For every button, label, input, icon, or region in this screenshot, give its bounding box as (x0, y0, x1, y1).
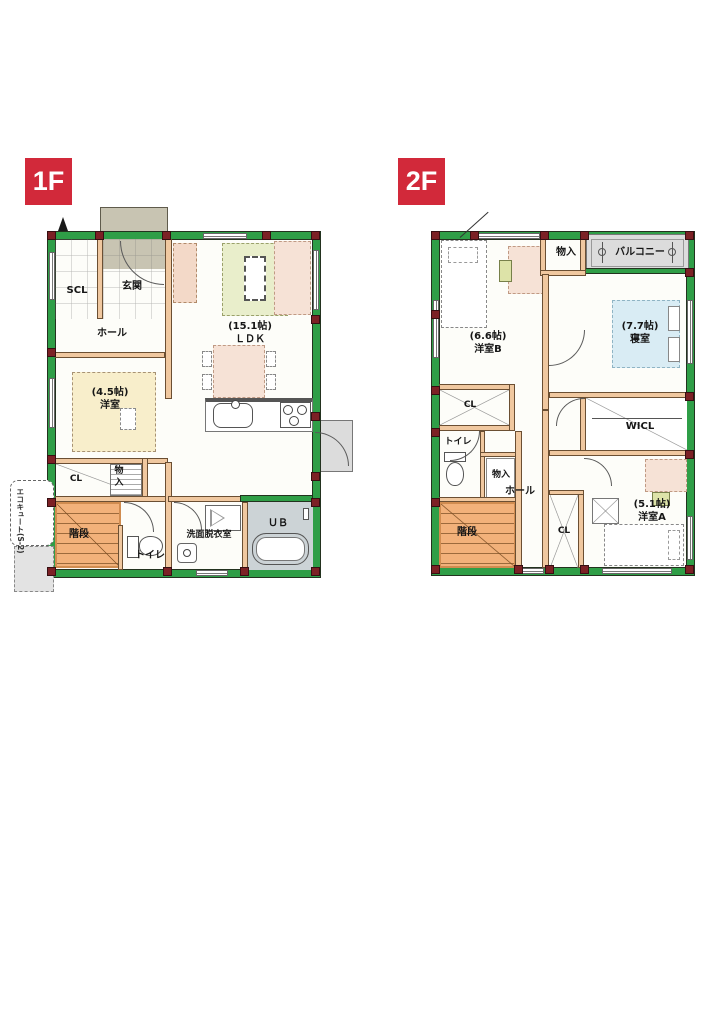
pillar (685, 231, 694, 240)
pillar (685, 565, 694, 574)
pillar (685, 392, 694, 401)
room-label-youshitsuA: (5.1帖) 洋室A (616, 498, 688, 524)
pillar (431, 498, 440, 507)
room-label-youshitsuB: (6.6帖) 洋室B (452, 330, 524, 356)
room-label-ldk: (15.1帖) ＬＤＫ (212, 320, 288, 346)
wall-closet-stairs (55, 496, 168, 502)
window (49, 378, 55, 428)
sink-drain-icon (183, 549, 191, 557)
coat-closet (173, 243, 197, 303)
pillar (514, 565, 523, 574)
pillar (311, 315, 320, 324)
pillar (470, 231, 479, 240)
pillar (47, 567, 56, 576)
pillar (311, 412, 320, 421)
wall-balcony (584, 268, 689, 274)
dining-table (213, 345, 265, 398)
room-label-hall2: ホール (494, 485, 546, 498)
room-label-genkan: 玄関 (104, 280, 160, 293)
wall-cl-top (549, 490, 584, 495)
faucet-icon (231, 400, 240, 409)
wall-monoire-left (540, 239, 546, 274)
pillar (431, 310, 440, 319)
pillar (431, 231, 440, 240)
pillar (685, 450, 694, 459)
north-arrow-icon (58, 217, 68, 231)
wall-roomB-closet (439, 384, 515, 390)
tatami-rug (72, 372, 156, 452)
pillar (431, 428, 440, 437)
room-label-wicl: WICL (614, 420, 666, 433)
stove-burner-icon (297, 405, 307, 415)
pillar (240, 567, 249, 576)
wall-hall-left (515, 431, 522, 568)
shower-fixture (303, 508, 309, 520)
pillar (311, 498, 320, 507)
room-label-monoire: 物入 (112, 466, 126, 489)
stove-burner-icon (289, 416, 299, 426)
bathtub (252, 533, 309, 565)
floor2-badge: 2F (398, 158, 445, 205)
dining-chair (266, 374, 276, 390)
wall-cl-roomA (578, 490, 584, 568)
window (433, 300, 439, 358)
wall-monoire-top (480, 452, 516, 457)
pillar (580, 231, 589, 240)
wall-roomB-bedroom (542, 274, 549, 410)
pillar (545, 565, 554, 574)
washing-machine (205, 505, 241, 531)
window (203, 233, 247, 239)
window (49, 252, 55, 300)
wicl-hanger-pipe (592, 418, 682, 419)
wall-genkan-ldk (165, 239, 172, 399)
chair-roomB (499, 260, 512, 282)
wall-ldk-bath-green (240, 495, 313, 502)
pillar (47, 348, 56, 357)
pillar (685, 268, 694, 277)
pillow (448, 247, 478, 263)
wall-bedroom-wicl (549, 392, 687, 398)
wall-closet-right (509, 384, 515, 431)
pillar (431, 565, 440, 574)
room-label-balcony: バルコニー (598, 246, 682, 259)
sofa (274, 241, 311, 315)
floorplan-sheet: 1F 2F (0, 0, 724, 1024)
pillar (311, 231, 320, 240)
pillar (163, 567, 172, 576)
pillar (580, 565, 589, 574)
room-label-kaidan: 階段 (60, 528, 98, 541)
wall-wicl-roomA (549, 450, 687, 456)
room-label-scl: SCL (60, 284, 94, 297)
room-label-toilet: トイレ (128, 549, 172, 562)
floor1-badge: 1F (25, 158, 72, 205)
room-label-cl-upper: CL (458, 400, 482, 412)
pillar (262, 231, 271, 240)
pillar (95, 231, 104, 240)
dining-chair (266, 351, 276, 367)
window (313, 250, 319, 310)
dining-chair (202, 351, 212, 367)
dresser-roomA (645, 459, 687, 492)
ecocute-label: エコキュート(S-2) (15, 486, 25, 556)
window (602, 568, 672, 574)
desk-roomB (508, 246, 544, 294)
wall-room-closet (55, 458, 168, 464)
coffee-table (244, 256, 266, 301)
room-label-kaidan2: 階段 (448, 526, 486, 539)
wall-ldk-washroom (168, 496, 242, 502)
room-label-cl: CL (64, 474, 88, 486)
pillow (668, 530, 680, 560)
pillar (47, 455, 56, 464)
room-label-monoire-mid: 物入 (485, 470, 517, 482)
pillar (47, 498, 56, 507)
room-label-youshitsu45: (4.5帖) 洋室 (76, 386, 144, 412)
toilet-bowl (446, 462, 464, 486)
wall-hall-room (55, 352, 165, 358)
room-label-monoire-top: 物入 (548, 246, 584, 259)
dining-chair (202, 374, 212, 390)
window (196, 570, 228, 576)
pillar (540, 231, 549, 240)
room-label-shinshitsu: (7.7帖) 寝室 (606, 320, 674, 346)
pillar (47, 231, 56, 240)
window (687, 300, 693, 364)
desk-roomA (592, 498, 619, 524)
room-label-toilet2: トイレ (436, 437, 480, 449)
wall-stairs-toilet (118, 525, 123, 570)
room-label-ub: ＵＢ (256, 517, 300, 530)
pillar (162, 231, 171, 240)
room-label-senmen: 洗面脱衣室 (172, 530, 246, 542)
room-label-cl-lower: CL (553, 526, 575, 538)
wall-scl-genkan (97, 239, 103, 319)
pillar (431, 386, 440, 395)
room-label-hall: ホール (86, 327, 138, 340)
stove-burner-icon (283, 405, 293, 415)
pillar (311, 567, 320, 576)
window (478, 233, 540, 239)
wall-toilet-monoire (480, 431, 485, 500)
pillar (311, 472, 320, 481)
